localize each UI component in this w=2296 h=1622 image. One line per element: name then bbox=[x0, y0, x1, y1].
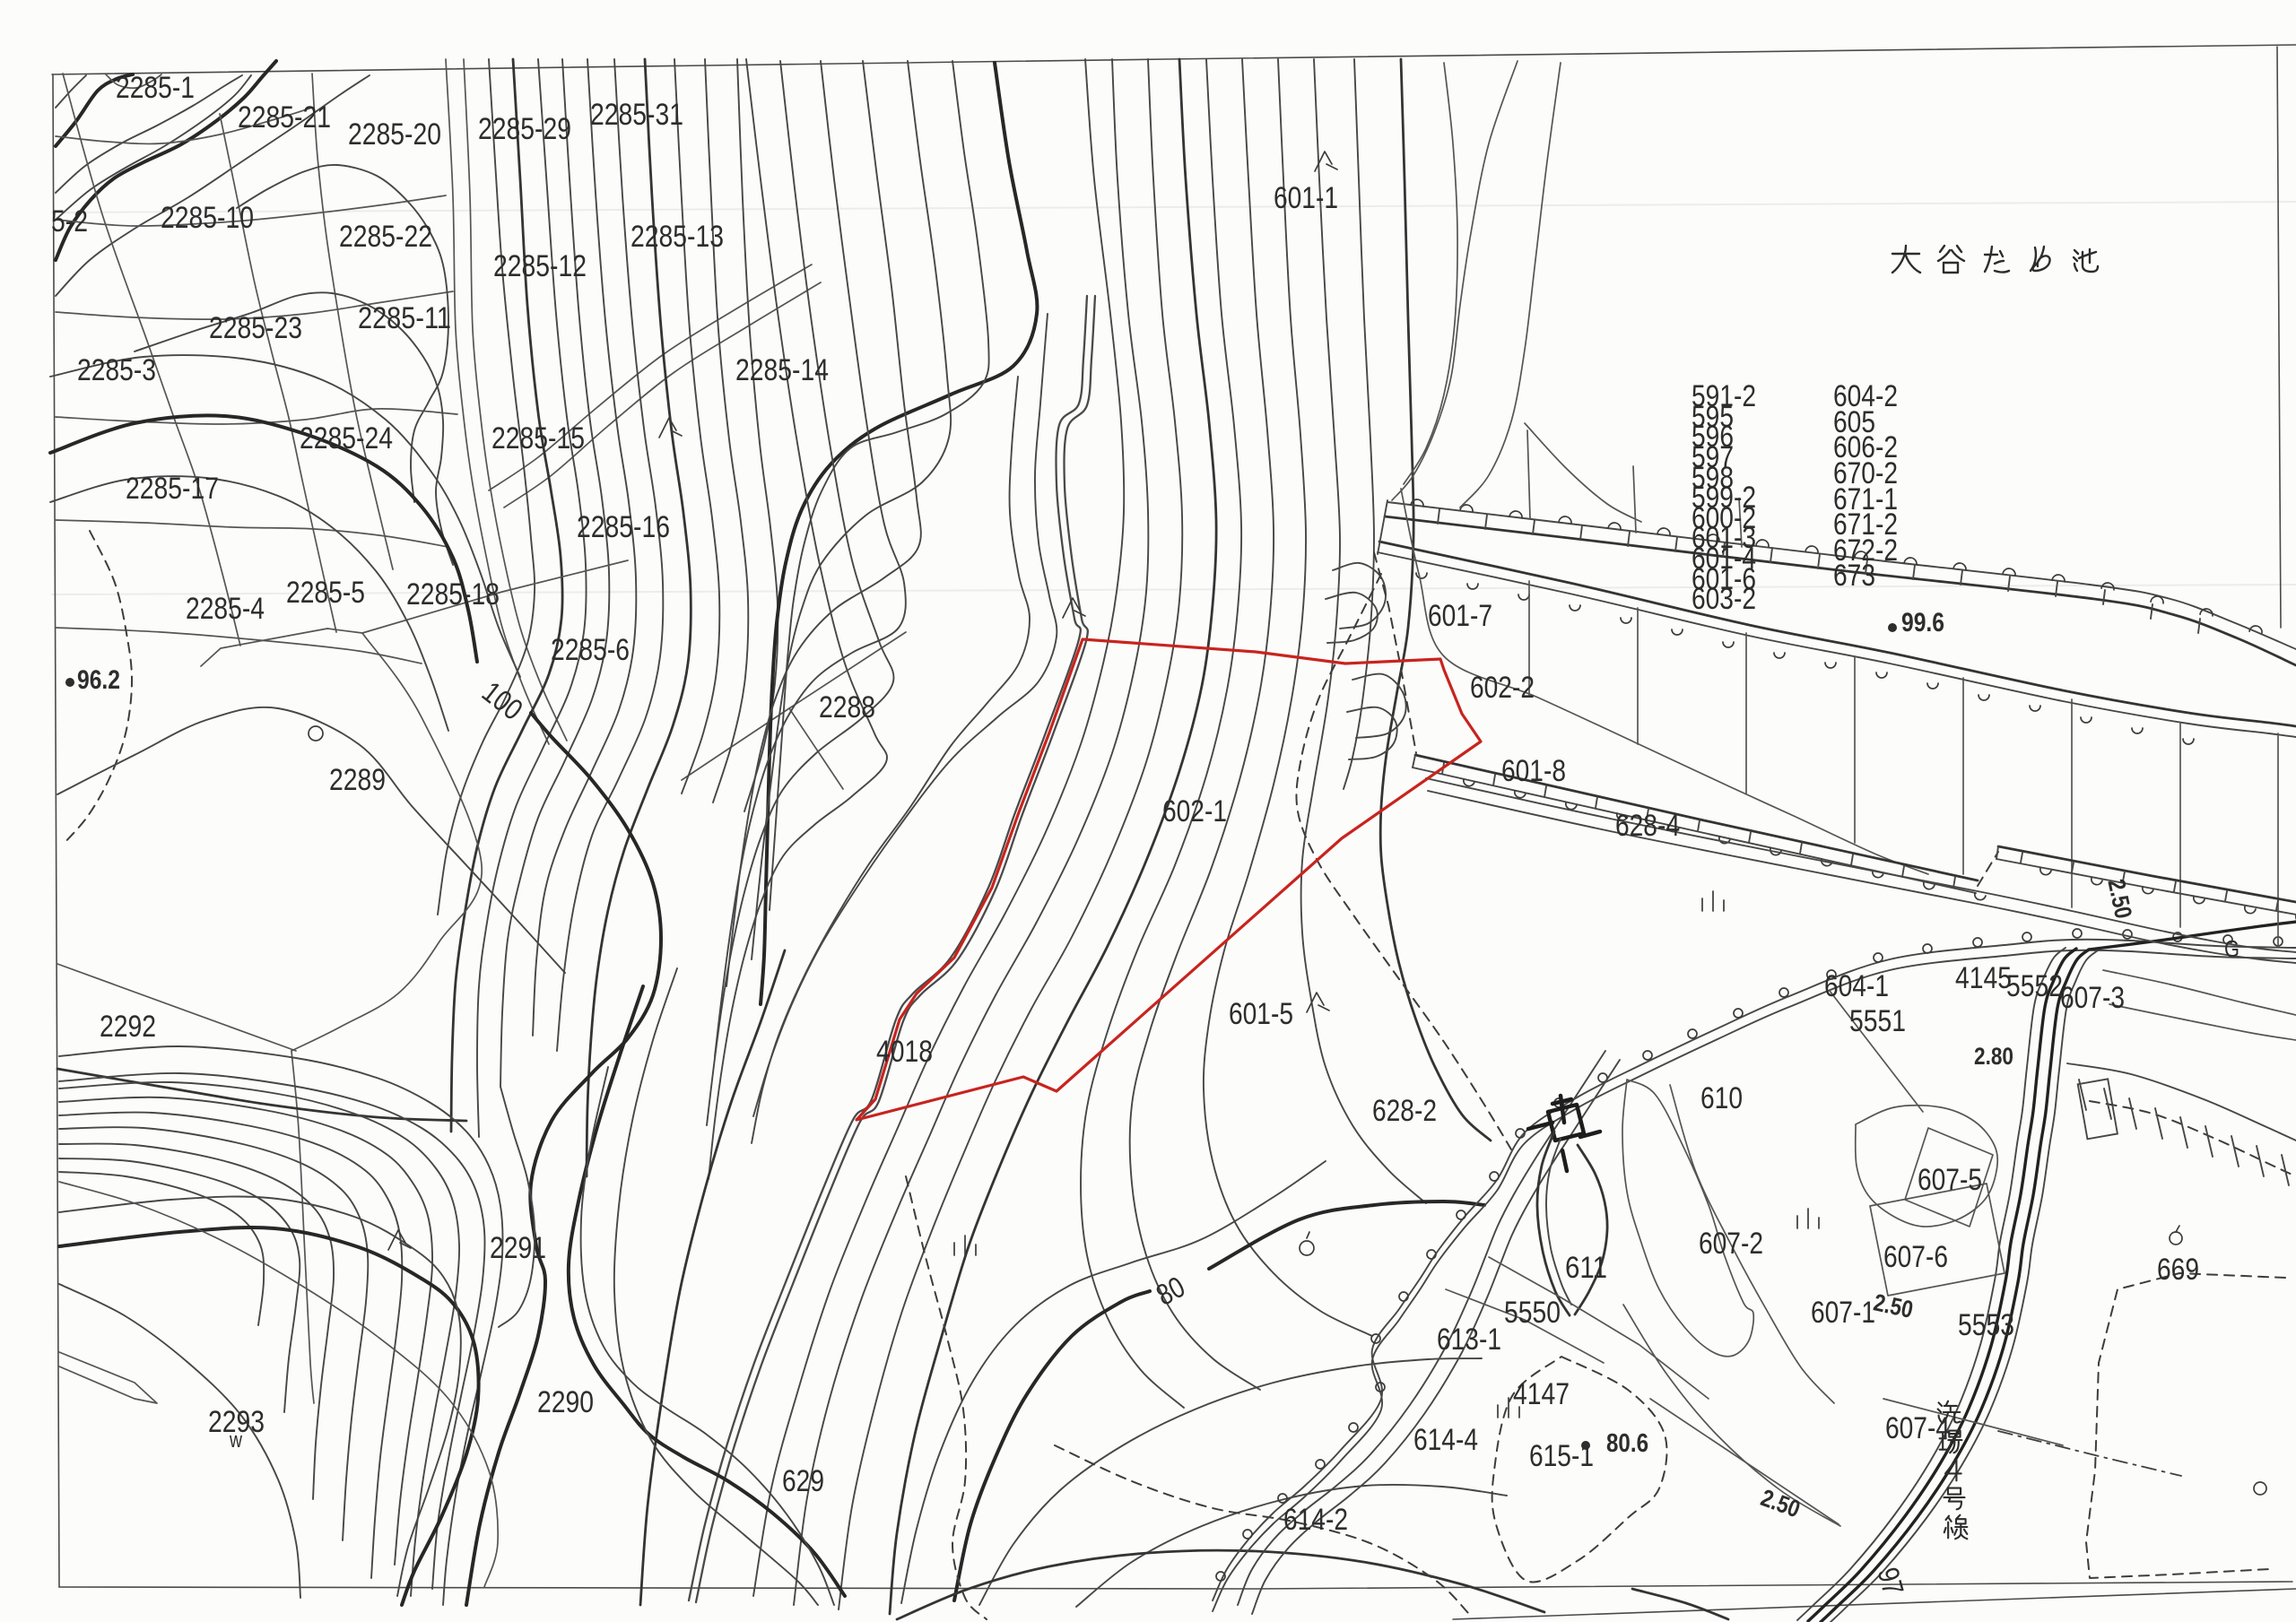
svg-text:607-1: 607-1 bbox=[1811, 1296, 1875, 1330]
svg-text:2.50: 2.50 bbox=[1757, 1484, 1804, 1522]
svg-text:2.80: 2.80 bbox=[1974, 1043, 2013, 1070]
svg-text:610: 610 bbox=[1700, 1081, 1743, 1115]
svg-text:2285-21: 2285-21 bbox=[238, 100, 331, 134]
svg-text:628-2: 628-2 bbox=[1372, 1094, 1437, 1128]
svg-text:611: 611 bbox=[1565, 1251, 1607, 1285]
svg-text:2285-24: 2285-24 bbox=[300, 421, 393, 455]
svg-text:2285-15: 2285-15 bbox=[491, 421, 585, 455]
svg-text:2285-13: 2285-13 bbox=[631, 220, 724, 254]
svg-text:603-2: 603-2 bbox=[1692, 582, 1756, 616]
svg-text:96.2: 96.2 bbox=[77, 665, 120, 695]
svg-text:2.50: 2.50 bbox=[2102, 877, 2136, 921]
svg-text:2285-4: 2285-4 bbox=[186, 592, 265, 626]
svg-text:2.50: 2.50 bbox=[1871, 1288, 1915, 1323]
svg-text:2285-17: 2285-17 bbox=[126, 472, 219, 506]
svg-text:5551: 5551 bbox=[1849, 1004, 1906, 1038]
svg-text:2288: 2288 bbox=[819, 690, 875, 724]
svg-text:5553: 5553 bbox=[1958, 1308, 2014, 1342]
svg-text:5552: 5552 bbox=[2006, 969, 2063, 1003]
svg-text:2285-12: 2285-12 bbox=[493, 249, 587, 283]
svg-text:601-7: 601-7 bbox=[1428, 599, 1492, 633]
svg-text:601-1: 601-1 bbox=[1274, 181, 1338, 215]
svg-text:G: G bbox=[2224, 935, 2239, 962]
svg-text:2291: 2291 bbox=[490, 1231, 546, 1265]
svg-text:2285-6: 2285-6 bbox=[551, 633, 630, 667]
svg-text:4147: 4147 bbox=[1513, 1377, 1570, 1411]
svg-text:2285-10: 2285-10 bbox=[161, 201, 254, 235]
svg-text:607-5: 607-5 bbox=[1918, 1163, 1982, 1197]
svg-text:2285-22: 2285-22 bbox=[339, 220, 432, 254]
svg-text:604-1: 604-1 bbox=[1824, 969, 1889, 1003]
svg-text:2290: 2290 bbox=[537, 1385, 594, 1419]
svg-text:628-4: 628-4 bbox=[1615, 809, 1680, 843]
svg-text:80: 80 bbox=[1151, 1270, 1190, 1312]
svg-text:602-2: 602-2 bbox=[1470, 671, 1535, 705]
svg-text:5550: 5550 bbox=[1504, 1296, 1561, 1330]
svg-text:5-2: 5-2 bbox=[51, 204, 88, 239]
svg-text:602-1: 602-1 bbox=[1162, 794, 1227, 828]
svg-text:614-2: 614-2 bbox=[1283, 1503, 1348, 1537]
svg-text:2285-14: 2285-14 bbox=[735, 353, 829, 387]
svg-text:99.6: 99.6 bbox=[1901, 608, 1944, 638]
svg-text:2285-11: 2285-11 bbox=[358, 301, 451, 335]
svg-text:w: w bbox=[229, 1428, 242, 1453]
svg-text:2285-18: 2285-18 bbox=[406, 577, 500, 612]
svg-text:80.6: 80.6 bbox=[1606, 1429, 1648, 1458]
svg-text:97: 97 bbox=[1872, 1564, 1911, 1599]
svg-text:2285-20: 2285-20 bbox=[348, 117, 441, 152]
svg-text:2289: 2289 bbox=[329, 763, 386, 797]
svg-text:2285-31: 2285-31 bbox=[590, 98, 683, 132]
svg-text:669: 669 bbox=[2157, 1253, 2199, 1287]
svg-text:601-8: 601-8 bbox=[1501, 754, 1566, 788]
svg-text:613-1: 613-1 bbox=[1437, 1323, 1501, 1357]
svg-text:673: 673 bbox=[1833, 559, 1875, 593]
svg-text:607-3: 607-3 bbox=[2060, 981, 2125, 1015]
svg-text:607-6: 607-6 bbox=[1883, 1240, 1948, 1274]
svg-text:2285-29: 2285-29 bbox=[478, 112, 571, 146]
svg-text:607-2: 607-2 bbox=[1699, 1227, 1763, 1261]
svg-text:601-5: 601-5 bbox=[1229, 997, 1293, 1031]
svg-text:629: 629 bbox=[782, 1464, 824, 1498]
svg-text:2285-1: 2285-1 bbox=[116, 71, 195, 105]
svg-text:4018: 4018 bbox=[876, 1035, 933, 1069]
svg-text:2285-5: 2285-5 bbox=[286, 576, 365, 610]
svg-text:2285-23: 2285-23 bbox=[209, 311, 302, 345]
svg-text:607-4: 607-4 bbox=[1885, 1411, 1950, 1445]
svg-text:2285-16: 2285-16 bbox=[577, 510, 670, 544]
svg-text:2292: 2292 bbox=[100, 1010, 156, 1044]
svg-text:614-4: 614-4 bbox=[1413, 1423, 1478, 1457]
svg-text:2285-3: 2285-3 bbox=[77, 353, 156, 387]
svg-text:4145: 4145 bbox=[1955, 961, 2012, 995]
svg-text:615-1: 615-1 bbox=[1529, 1439, 1594, 1473]
